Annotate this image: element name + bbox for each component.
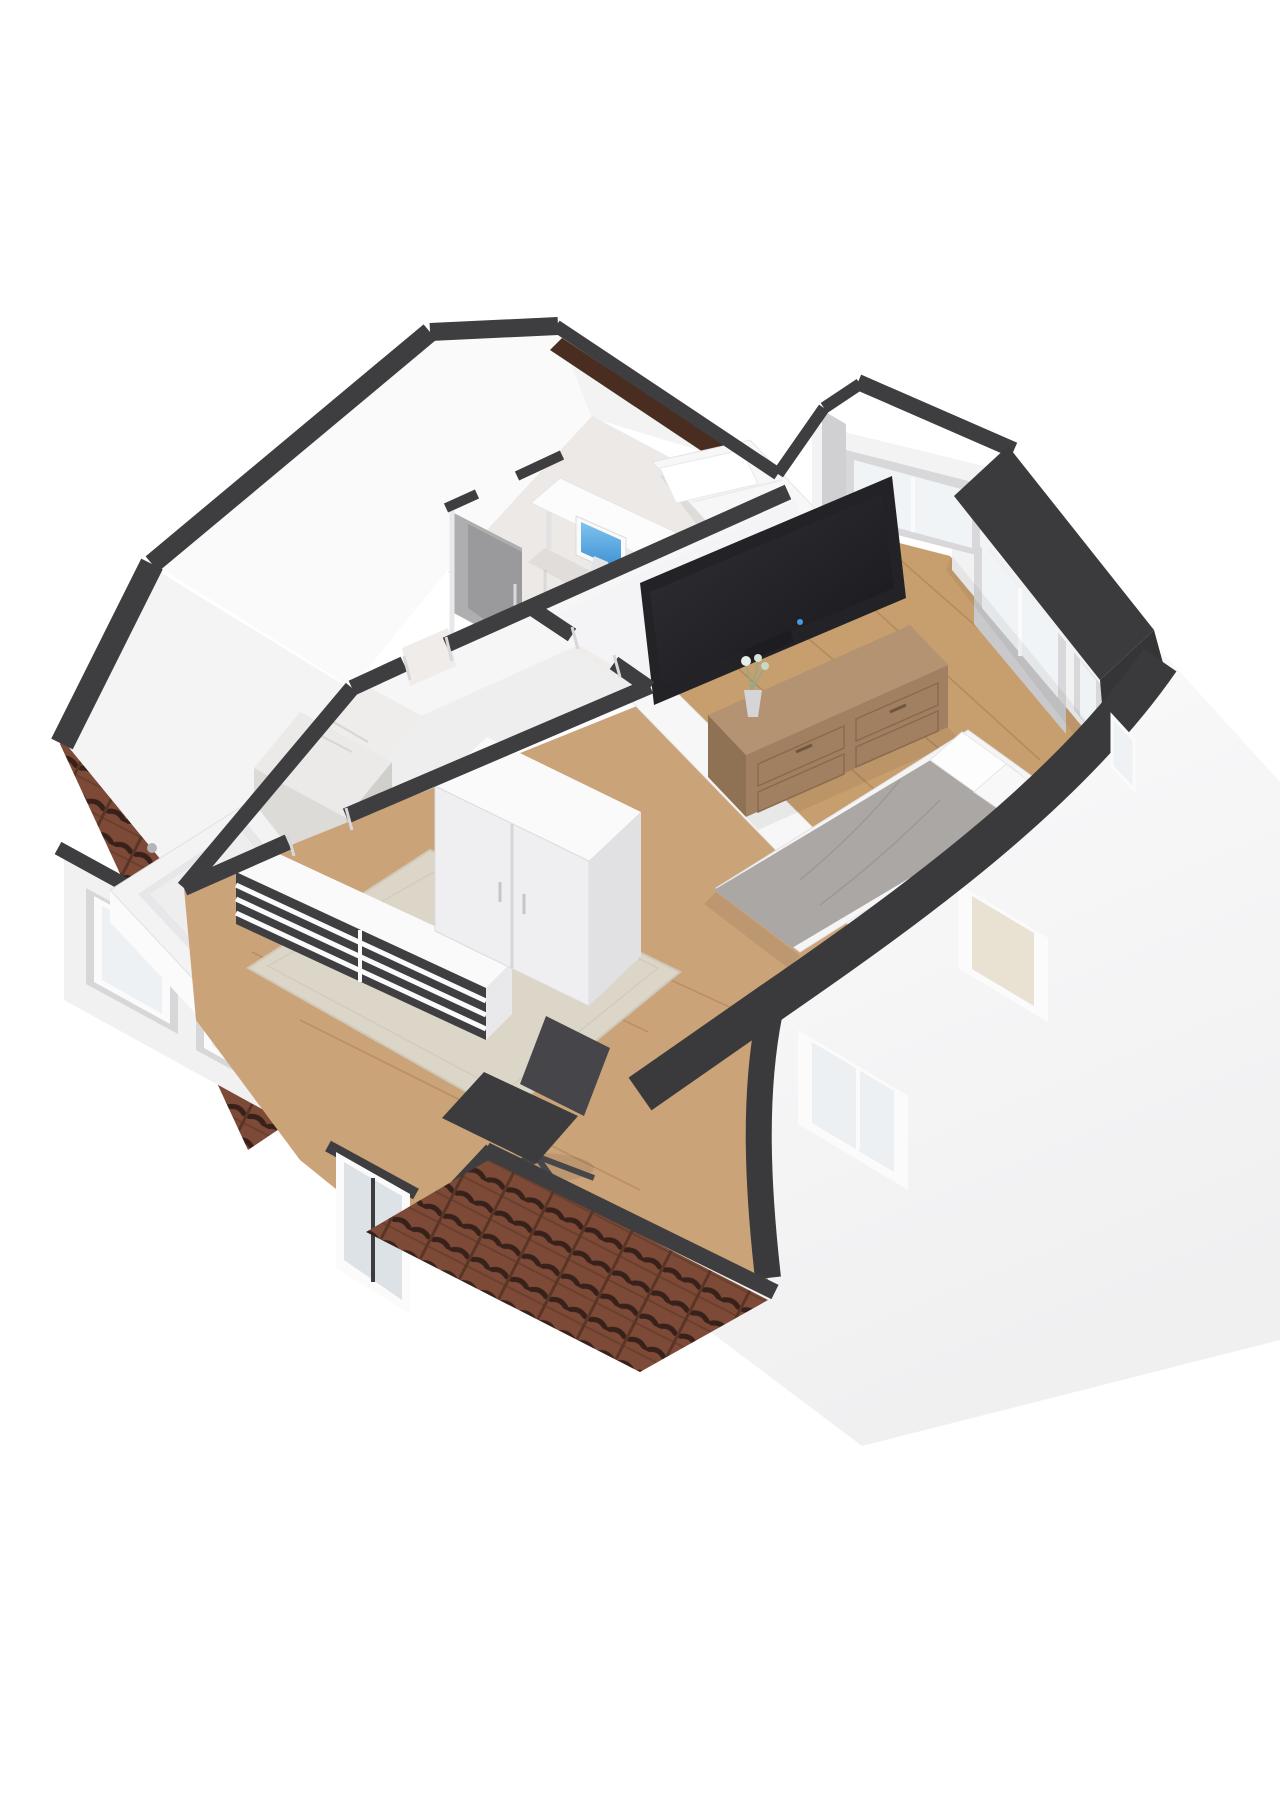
bathtub-faucet xyxy=(147,843,157,853)
vase-flower-3 xyxy=(761,662,769,670)
vase-flower-1 xyxy=(741,656,751,666)
scene-root xyxy=(58,326,1280,1446)
floorplan-3d-render xyxy=(0,0,1280,1810)
wall-band-dormer-ridge xyxy=(824,384,860,408)
wall-band-dormer-eaves xyxy=(858,382,1014,450)
vase-flower-2 xyxy=(754,654,762,662)
floorplan-svg xyxy=(0,0,1280,1810)
wall-band-knee-right xyxy=(759,1002,772,1278)
tv-led xyxy=(797,619,803,625)
wall-band-outline-top xyxy=(430,326,558,332)
